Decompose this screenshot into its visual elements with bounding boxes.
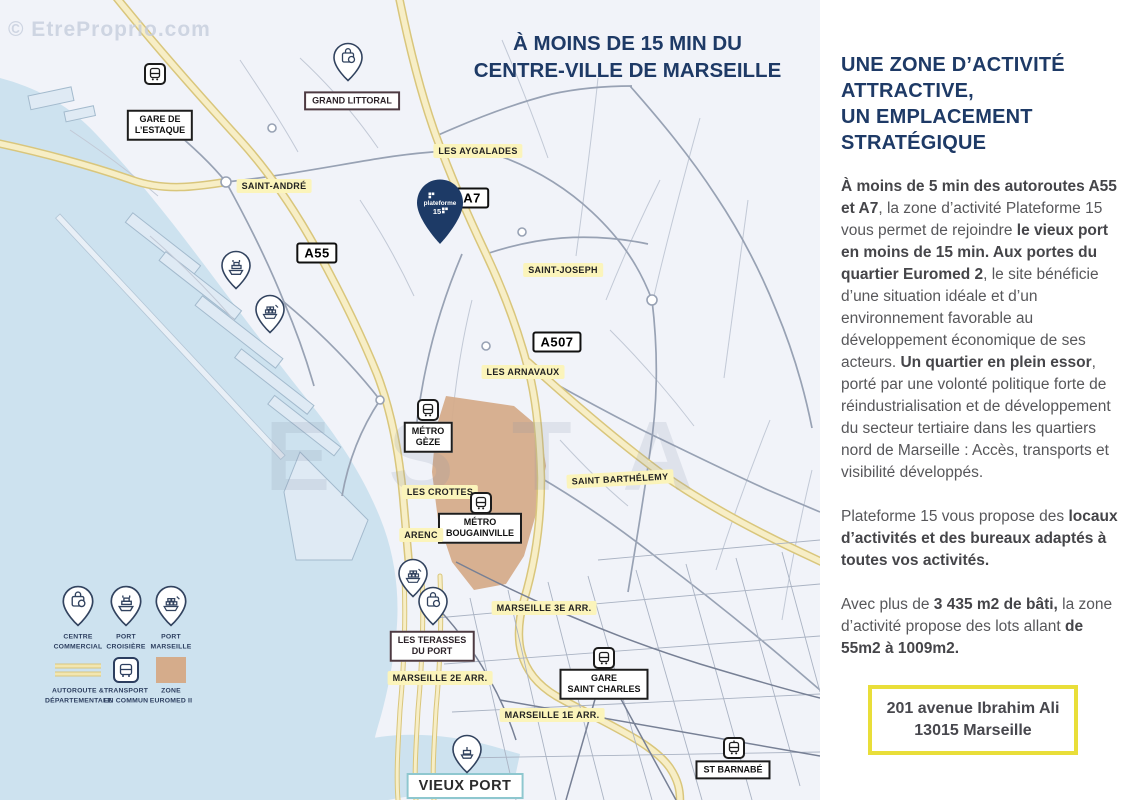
map-label-gare-saint-charles: GARE SAINT CHARLES	[559, 669, 648, 700]
map-title: À MOINS DE 15 MIN DU CENTRE-VILLE DE MAR…	[455, 30, 800, 84]
paragraph-offer: Plateforme 15 vous propose des locaux d’…	[841, 506, 1118, 572]
road-badge-a55: A55	[296, 243, 337, 264]
cargo-ship-pin-icon	[254, 294, 286, 334]
map-label-st-barnabe: ST BARNABÉ	[695, 760, 770, 779]
map-area: © EtreProprio.com ESTA À MOINS DE 15 MIN…	[0, 0, 820, 800]
text-segment: , porté par une volonté politique forte …	[841, 354, 1111, 481]
legend-label-zone-euromed: ZONE EUROMED II	[138, 686, 204, 705]
plateforme-pin-word: plateforme	[424, 200, 457, 207]
map-label-les-aygalades: LES AYGALADES	[433, 144, 522, 158]
info-panel: UNE ZONE D’ACTIVITÉ ATTRACTIVE, UN EMPLA…	[820, 0, 1137, 800]
legend-zone-swatch	[156, 657, 186, 683]
plateforme15-pin: plateforme 15	[412, 177, 468, 247]
map-label-saint-andre: SAINT-ANDRÉ	[237, 179, 312, 193]
shopping-pin-icon	[332, 42, 364, 82]
shopping-pin-icon	[417, 586, 449, 626]
map-label-les-terasses: LES TERASSES DU PORT	[390, 631, 475, 662]
watermark-etreproprio: © EtreProprio.com	[8, 18, 211, 42]
paragraph-access: À moins de 5 min des autoroutes A55 et A…	[841, 176, 1118, 484]
map-label-marseille-3e: MARSEILLE 3E ARR.	[492, 601, 597, 615]
address-box: 201 avenue Ibrahim Ali 13015 Marseille	[868, 685, 1078, 755]
panel-body: À moins de 5 min des autoroutes A55 et A…	[841, 176, 1118, 682]
gare-saint-charles-icon	[593, 647, 615, 669]
legend-autoroute-icon	[55, 661, 101, 680]
legend-label-port-marseille: PORT MARSEILLE	[138, 632, 204, 651]
ferry-pin-icon	[451, 734, 483, 774]
legend-cruise-pin-icon	[109, 585, 143, 627]
text-segment: Plateforme 15 vous propose des	[841, 508, 1068, 525]
map-label-metro-geze: MÉTRO GÈZE	[404, 422, 453, 453]
text-segment: Un quartier en plein essor	[900, 354, 1091, 371]
tram-st-barnabe-icon	[723, 737, 745, 759]
watermark-center: ESTA	[265, 400, 751, 513]
map-label-arenc: ARENC	[399, 528, 443, 542]
legend-bus-icon	[113, 657, 139, 683]
map-label-grand-littoral: GRAND LITTORAL	[304, 91, 400, 110]
cruise-ship-pin-icon	[220, 250, 252, 290]
legend-shopping-pin-icon	[61, 585, 95, 627]
paragraph-surface: Avec plus de 3 435 m2 de bâti, la zone d…	[841, 594, 1118, 660]
brochure-page: © EtreProprio.com ESTA À MOINS DE 15 MIN…	[0, 0, 1137, 800]
map-label-metro-bougainville: MÉTRO BOUGAINVILLE	[438, 513, 522, 544]
map-label-gare-estaque: GARE DE L’ESTAQUE	[127, 110, 193, 141]
map-label-les-arnavaux: LES ARNAVAUX	[482, 365, 565, 379]
legend-cargo-pin-icon	[154, 585, 188, 627]
text-segment: 3 435 m2 de bâti,	[934, 596, 1058, 613]
map-label-marseille-1e: MARSEILLE 1E ARR.	[500, 708, 605, 722]
map-label-marseille-2e: MARSEILLE 2E ARR.	[388, 671, 493, 685]
plateforme-pin-number: 15	[433, 207, 441, 216]
train-station-icon	[144, 63, 166, 85]
text-segment: Avec plus de	[841, 596, 934, 613]
metro-bougainville-icon	[470, 492, 492, 514]
panel-heading: UNE ZONE D’ACTIVITÉ ATTRACTIVE, UN EMPLA…	[841, 52, 1121, 156]
metro-geze-icon	[417, 399, 439, 421]
road-badge-a507: A507	[532, 332, 581, 353]
map-label-vieux-port: VIEUX PORT	[407, 773, 524, 799]
map-label-les-crottes: LES CROTTES	[402, 485, 478, 499]
map-label-saint-joseph: SAINT-JOSEPH	[523, 263, 603, 277]
